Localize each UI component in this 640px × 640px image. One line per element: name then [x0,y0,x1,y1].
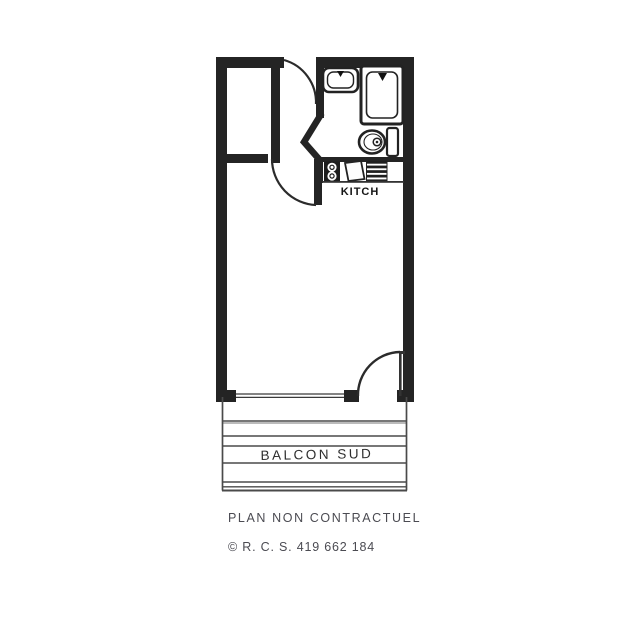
balcony-door-leaf [399,352,402,396]
south-window [236,394,344,397]
kitchen-sink [345,161,365,181]
toilet-tank [387,128,398,156]
hob-burners [324,162,340,182]
bathroom [304,57,403,158]
entrance-door-arc [284,60,316,104]
registration-text: © R. C. S. 419 662 184 [228,540,421,554]
hall-door-arc [272,159,316,205]
toilet [359,128,398,156]
wall-bottom-mid-stub [344,390,359,402]
hall-door-leaf [314,159,322,205]
washbasin [323,68,358,92]
balcony: BALCON SUD [222,397,407,491]
wall-left [216,57,227,402]
bathroom-chamfer-wall [304,116,320,158]
wall-right [403,57,414,402]
floor-plan-page: KITCH BALCO [0,0,640,640]
closet-bottom-wall [216,154,268,163]
balcony-label: BALCON SUD [260,446,373,463]
counter-bottom-edge [316,181,404,183]
closet-right-wall [271,57,280,163]
captions-block: PLAN NON CONTRACTUEL © R. C. S. 419 662 … [228,511,421,554]
kitchen-label: KITCH [341,186,380,198]
balcony-door [358,351,405,396]
hatched-appliance [367,161,388,181]
balcony-door-arc [358,352,400,396]
disclaimer-text: PLAN NON CONTRACTUEL [228,511,421,525]
kitchenette: KITCH [316,157,406,198]
wall-bottom-left-block [216,390,236,402]
hall-door [272,159,322,205]
shower [361,66,403,124]
